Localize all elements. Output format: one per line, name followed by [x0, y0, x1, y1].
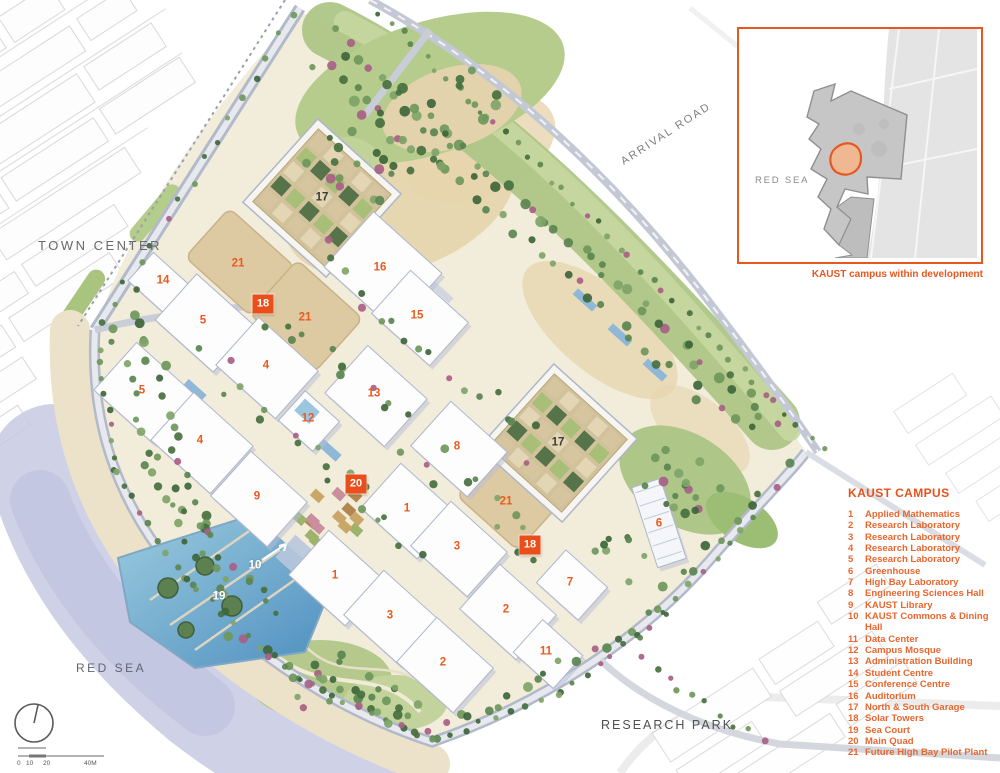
inset-caption: KAUST campus within development [737, 269, 987, 280]
town-center-label: TOWN CENTER [38, 238, 162, 253]
legend-item: 14Student Centre [848, 668, 998, 679]
legend-item: 16Auditorium [848, 691, 998, 702]
legend-item: 19Sea Court [848, 725, 998, 736]
locator-inset-art [739, 29, 977, 258]
legend-item: 11Data Center [848, 634, 998, 645]
legend-item: 20Main Quad [848, 736, 998, 747]
red-sea-label: RED SEA [76, 661, 146, 675]
legend-item: 9KAUST Library [848, 600, 998, 611]
legend-item: 10KAUST Commons & Dining Hall [848, 611, 998, 634]
legend-item: 5Research Laboratory [848, 554, 998, 565]
legend-item: 13Administration Building [848, 656, 998, 667]
svg-text:10: 10 [26, 760, 34, 767]
legend-item: 17North & South Garage [848, 702, 998, 713]
legend-item: 21Future High Bay Pilot Plant [848, 747, 998, 758]
svg-text:20: 20 [43, 760, 51, 767]
legend-item: 2Research Laboratory [848, 520, 998, 531]
legend-item: 6Greenhouse [848, 566, 998, 577]
inset-red-sea-label: RED SEA [755, 175, 809, 186]
legend-item: 7High Bay Laboratory [848, 577, 998, 588]
research-park-label: RESEARCH PARK [601, 718, 733, 732]
legend-item: 15Conference Centre [848, 679, 998, 690]
legend-item: 8Engineering Sciences Hall [848, 588, 998, 599]
north-compass-icon [12, 700, 56, 744]
locator-inset-map: RED SEA [737, 27, 983, 264]
legend-item: 1Applied Mathematics [848, 509, 998, 520]
kaust-campus-highlight [830, 143, 861, 174]
legend-item: 12Campus Mosque [848, 645, 998, 656]
legend-list: 1Applied Mathematics2Research Laboratory… [848, 509, 998, 759]
legend-item: 4Research Laboratory [848, 543, 998, 554]
legend-item: 3Research Laboratory [848, 532, 998, 543]
svg-text:0: 0 [17, 760, 21, 767]
scale-bar: 0 10 20 40M [12, 744, 122, 768]
legend-item: 18Solar Towers [848, 713, 998, 724]
svg-text:40M: 40M [84, 760, 97, 767]
campus-legend: KAUST CAMPUS 1Applied Mathematics2Resear… [848, 486, 998, 759]
legend-title: KAUST CAMPUS [848, 486, 998, 500]
